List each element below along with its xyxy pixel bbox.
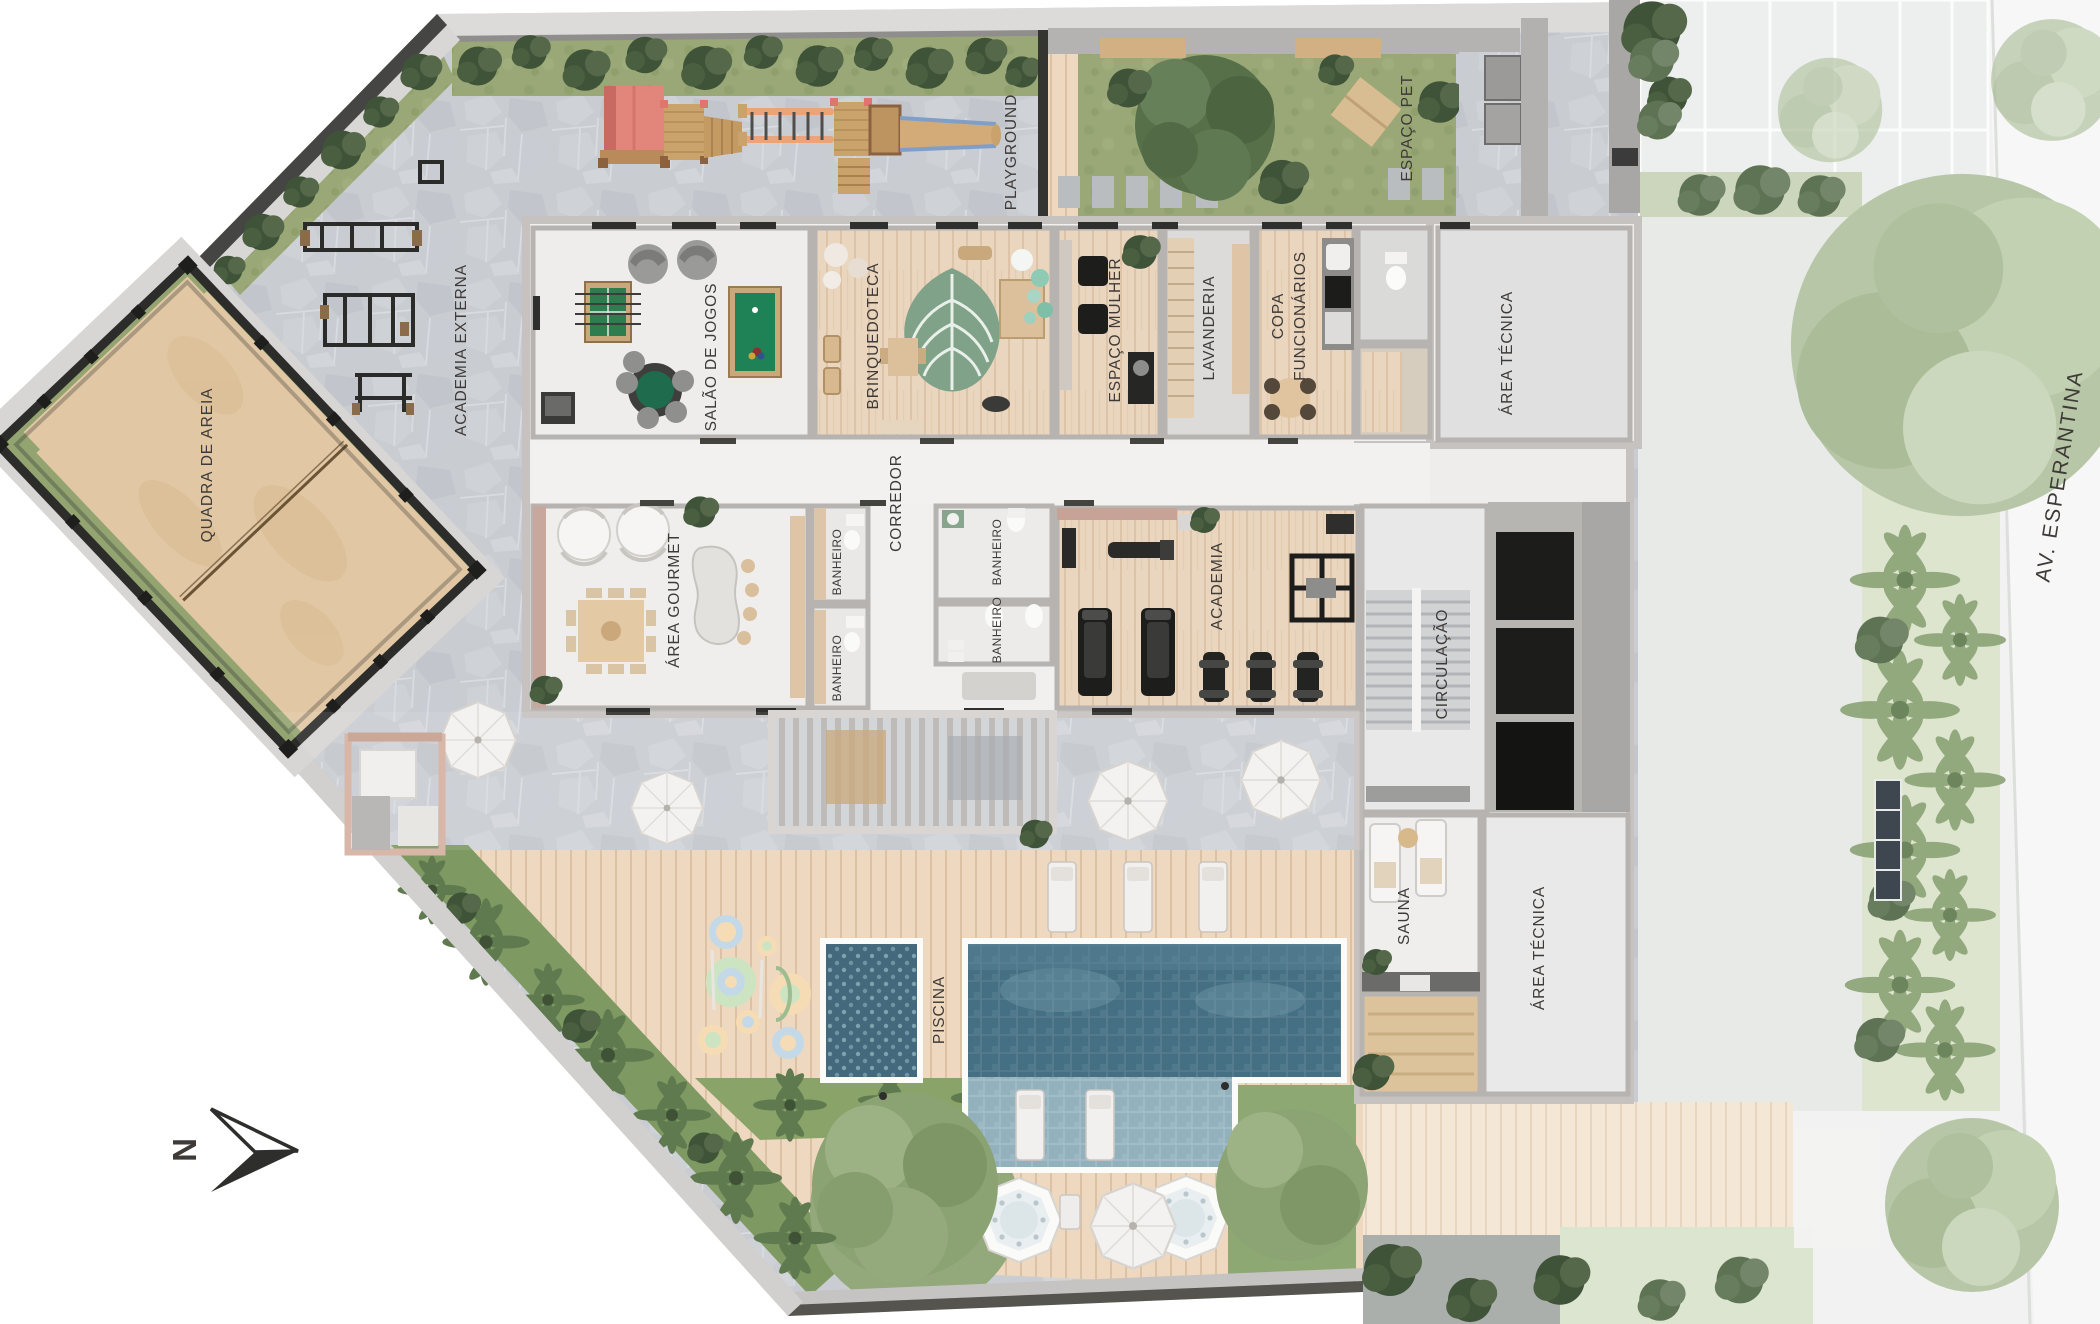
svg-text:ÁREA GOURMET: ÁREA GOURMET — [666, 532, 683, 668]
svg-text:PLAYGROUND: PLAYGROUND — [1003, 94, 1020, 210]
svg-text:BANHEIRO: BANHEIRO — [990, 597, 1004, 664]
svg-text:PISCINA: PISCINA — [931, 976, 948, 1044]
svg-text:BANHEIRO: BANHEIRO — [830, 635, 844, 702]
svg-text:CIRCULAÇÃO: CIRCULAÇÃO — [1434, 609, 1451, 720]
svg-text:N: N — [166, 1138, 203, 1162]
svg-text:FUNCIONÁRIOS: FUNCIONÁRIOS — [1292, 251, 1309, 381]
svg-text:CORREDOR: CORREDOR — [888, 454, 905, 552]
svg-text:ESPAÇO MULHER: ESPAÇO MULHER — [1107, 258, 1124, 403]
svg-text:ACADEMIA: ACADEMIA — [1209, 542, 1226, 630]
svg-text:BRINQUEDOTECA: BRINQUEDOTECA — [865, 263, 882, 410]
svg-text:ÁREA TÉCNICA: ÁREA TÉCNICA — [1499, 291, 1516, 415]
svg-text:COPA: COPA — [1270, 293, 1287, 339]
svg-text:SAUNA: SAUNA — [1396, 887, 1413, 945]
svg-text:ÁREA TÉCNICA: ÁREA TÉCNICA — [1531, 886, 1548, 1010]
svg-text:LAVANDERIA: LAVANDERIA — [1201, 276, 1218, 381]
svg-text:ACADEMIA EXTERNA: ACADEMIA EXTERNA — [453, 264, 470, 436]
svg-text:ESPAÇO PET: ESPAÇO PET — [1399, 75, 1416, 182]
svg-text:BANHEIRO: BANHEIRO — [830, 529, 844, 596]
svg-text:BANHEIRO: BANHEIRO — [990, 519, 1004, 586]
svg-text:QUADRA DE AREIA: QUADRA DE AREIA — [199, 388, 216, 543]
svg-text:SALÃO DE JOGOS: SALÃO DE JOGOS — [703, 283, 720, 432]
